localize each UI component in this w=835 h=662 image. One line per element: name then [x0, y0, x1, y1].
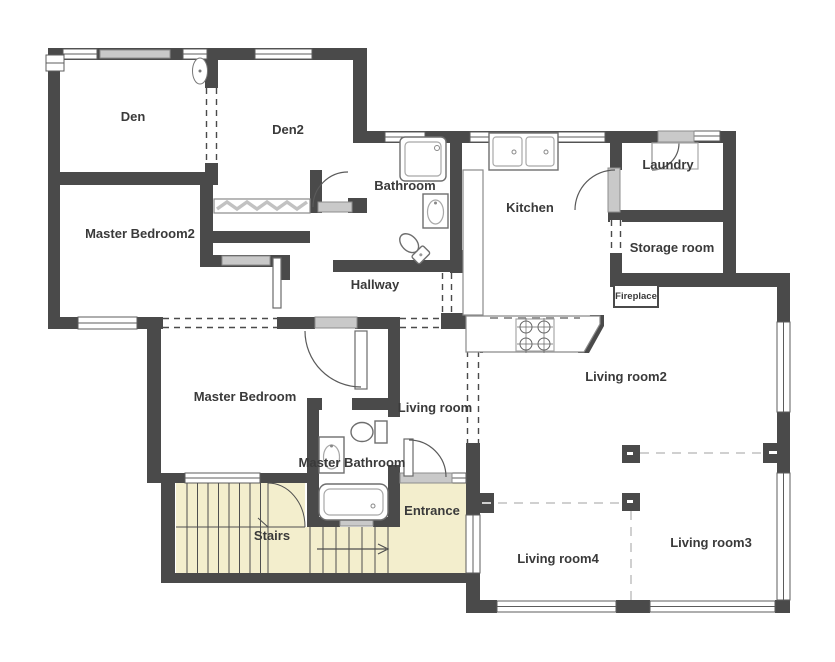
window [255, 49, 312, 59]
sliding-door [315, 317, 357, 328]
master-bathroom-fixtures [319, 421, 388, 520]
window [497, 601, 616, 612]
wall-segment [48, 48, 60, 327]
column-mark [769, 451, 777, 454]
floorplan-page: Den Den2 Bathroom Kitchen Laundry Master… [0, 0, 835, 662]
door-swing [404, 439, 446, 477]
dashed-opening [163, 317, 277, 329]
sliding-door [222, 256, 270, 265]
wall-segment [450, 143, 462, 250]
room-separators [482, 453, 763, 601]
room-label-stairs: Stairs [254, 528, 290, 543]
window [466, 515, 480, 573]
room-label-den: Den [121, 109, 146, 124]
room-label-master-bathroom: Master Bathroom [299, 455, 406, 470]
wall-segment [147, 317, 161, 483]
room-label-living-room2: Living room2 [585, 369, 667, 384]
window [78, 317, 137, 329]
toilet-fixture [396, 230, 431, 265]
column-mark [627, 500, 633, 503]
window [185, 473, 260, 483]
sliding-door [658, 131, 694, 142]
sink-fixture [423, 194, 448, 228]
wall-segment [353, 48, 367, 143]
closet-door-leaf [273, 258, 281, 308]
room-label-bathroom: Bathroom [374, 178, 435, 193]
room-label-hallway: Hallway [351, 277, 400, 292]
room-label-laundry: Laundry [642, 157, 694, 172]
room-label-master-bedroom2: Master Bedroom2 [85, 226, 195, 241]
wall-segment [723, 131, 736, 287]
sliding-door [100, 50, 170, 58]
kitchen-sink-fixture [489, 133, 558, 170]
window [452, 473, 466, 483]
ceiling-light-icon [193, 58, 208, 84]
wall-segment [616, 600, 650, 613]
wall-segment [213, 231, 310, 243]
room-label-kitchen: Kitchen [506, 200, 554, 215]
wall-segment [775, 600, 790, 613]
wall-segment [333, 260, 462, 272]
toilet-fixture [351, 421, 387, 443]
dashed-opening [610, 220, 622, 253]
wall-segment [777, 287, 790, 322]
room-label-fireplace: Fireplace [615, 291, 657, 302]
dashed-opening [441, 273, 453, 313]
room-label-storage-room: Storage room [630, 240, 715, 255]
window [650, 601, 775, 612]
wall-segment [610, 143, 622, 170]
window [777, 473, 790, 600]
bathtub-fixture [319, 484, 388, 520]
closet [214, 199, 310, 308]
window [63, 49, 97, 59]
room-label-entrance: Entrance [404, 503, 460, 518]
dashed-opening [205, 88, 218, 163]
floorplan-canvas: Den Den2 Bathroom Kitchen Laundry Master… [0, 0, 835, 662]
wall-segment [48, 172, 218, 185]
bathroom-fixtures [396, 137, 448, 264]
room-label-living-room3: Living room3 [670, 535, 752, 550]
door-swing [575, 168, 620, 212]
wall-segment [610, 210, 736, 222]
wall-segment [48, 317, 78, 329]
kitchen-counter [463, 133, 600, 353]
window [694, 131, 720, 141]
wall-segment [161, 473, 175, 581]
stove-counter [466, 316, 600, 352]
room-label-living-room4: Living room4 [517, 551, 599, 566]
wall-segment [777, 412, 790, 473]
wall-segment [260, 473, 307, 483]
wall-segment [200, 184, 213, 255]
room-label-living-room: Living room [398, 400, 472, 415]
dashed-opening [400, 317, 441, 329]
window [183, 49, 207, 59]
room-label-den2: Den2 [272, 122, 304, 137]
doorway-gap [322, 398, 352, 410]
window [46, 55, 64, 71]
room-label-master-bedroom: Master Bedroom [194, 389, 297, 404]
wall-segment [307, 398, 400, 410]
door-swing [305, 331, 367, 389]
wall-segment [277, 317, 315, 329]
wall-segment [355, 317, 400, 329]
window [777, 322, 790, 412]
wall-segment [161, 573, 480, 583]
column-mark [627, 452, 633, 455]
shower-fixture [400, 137, 446, 181]
